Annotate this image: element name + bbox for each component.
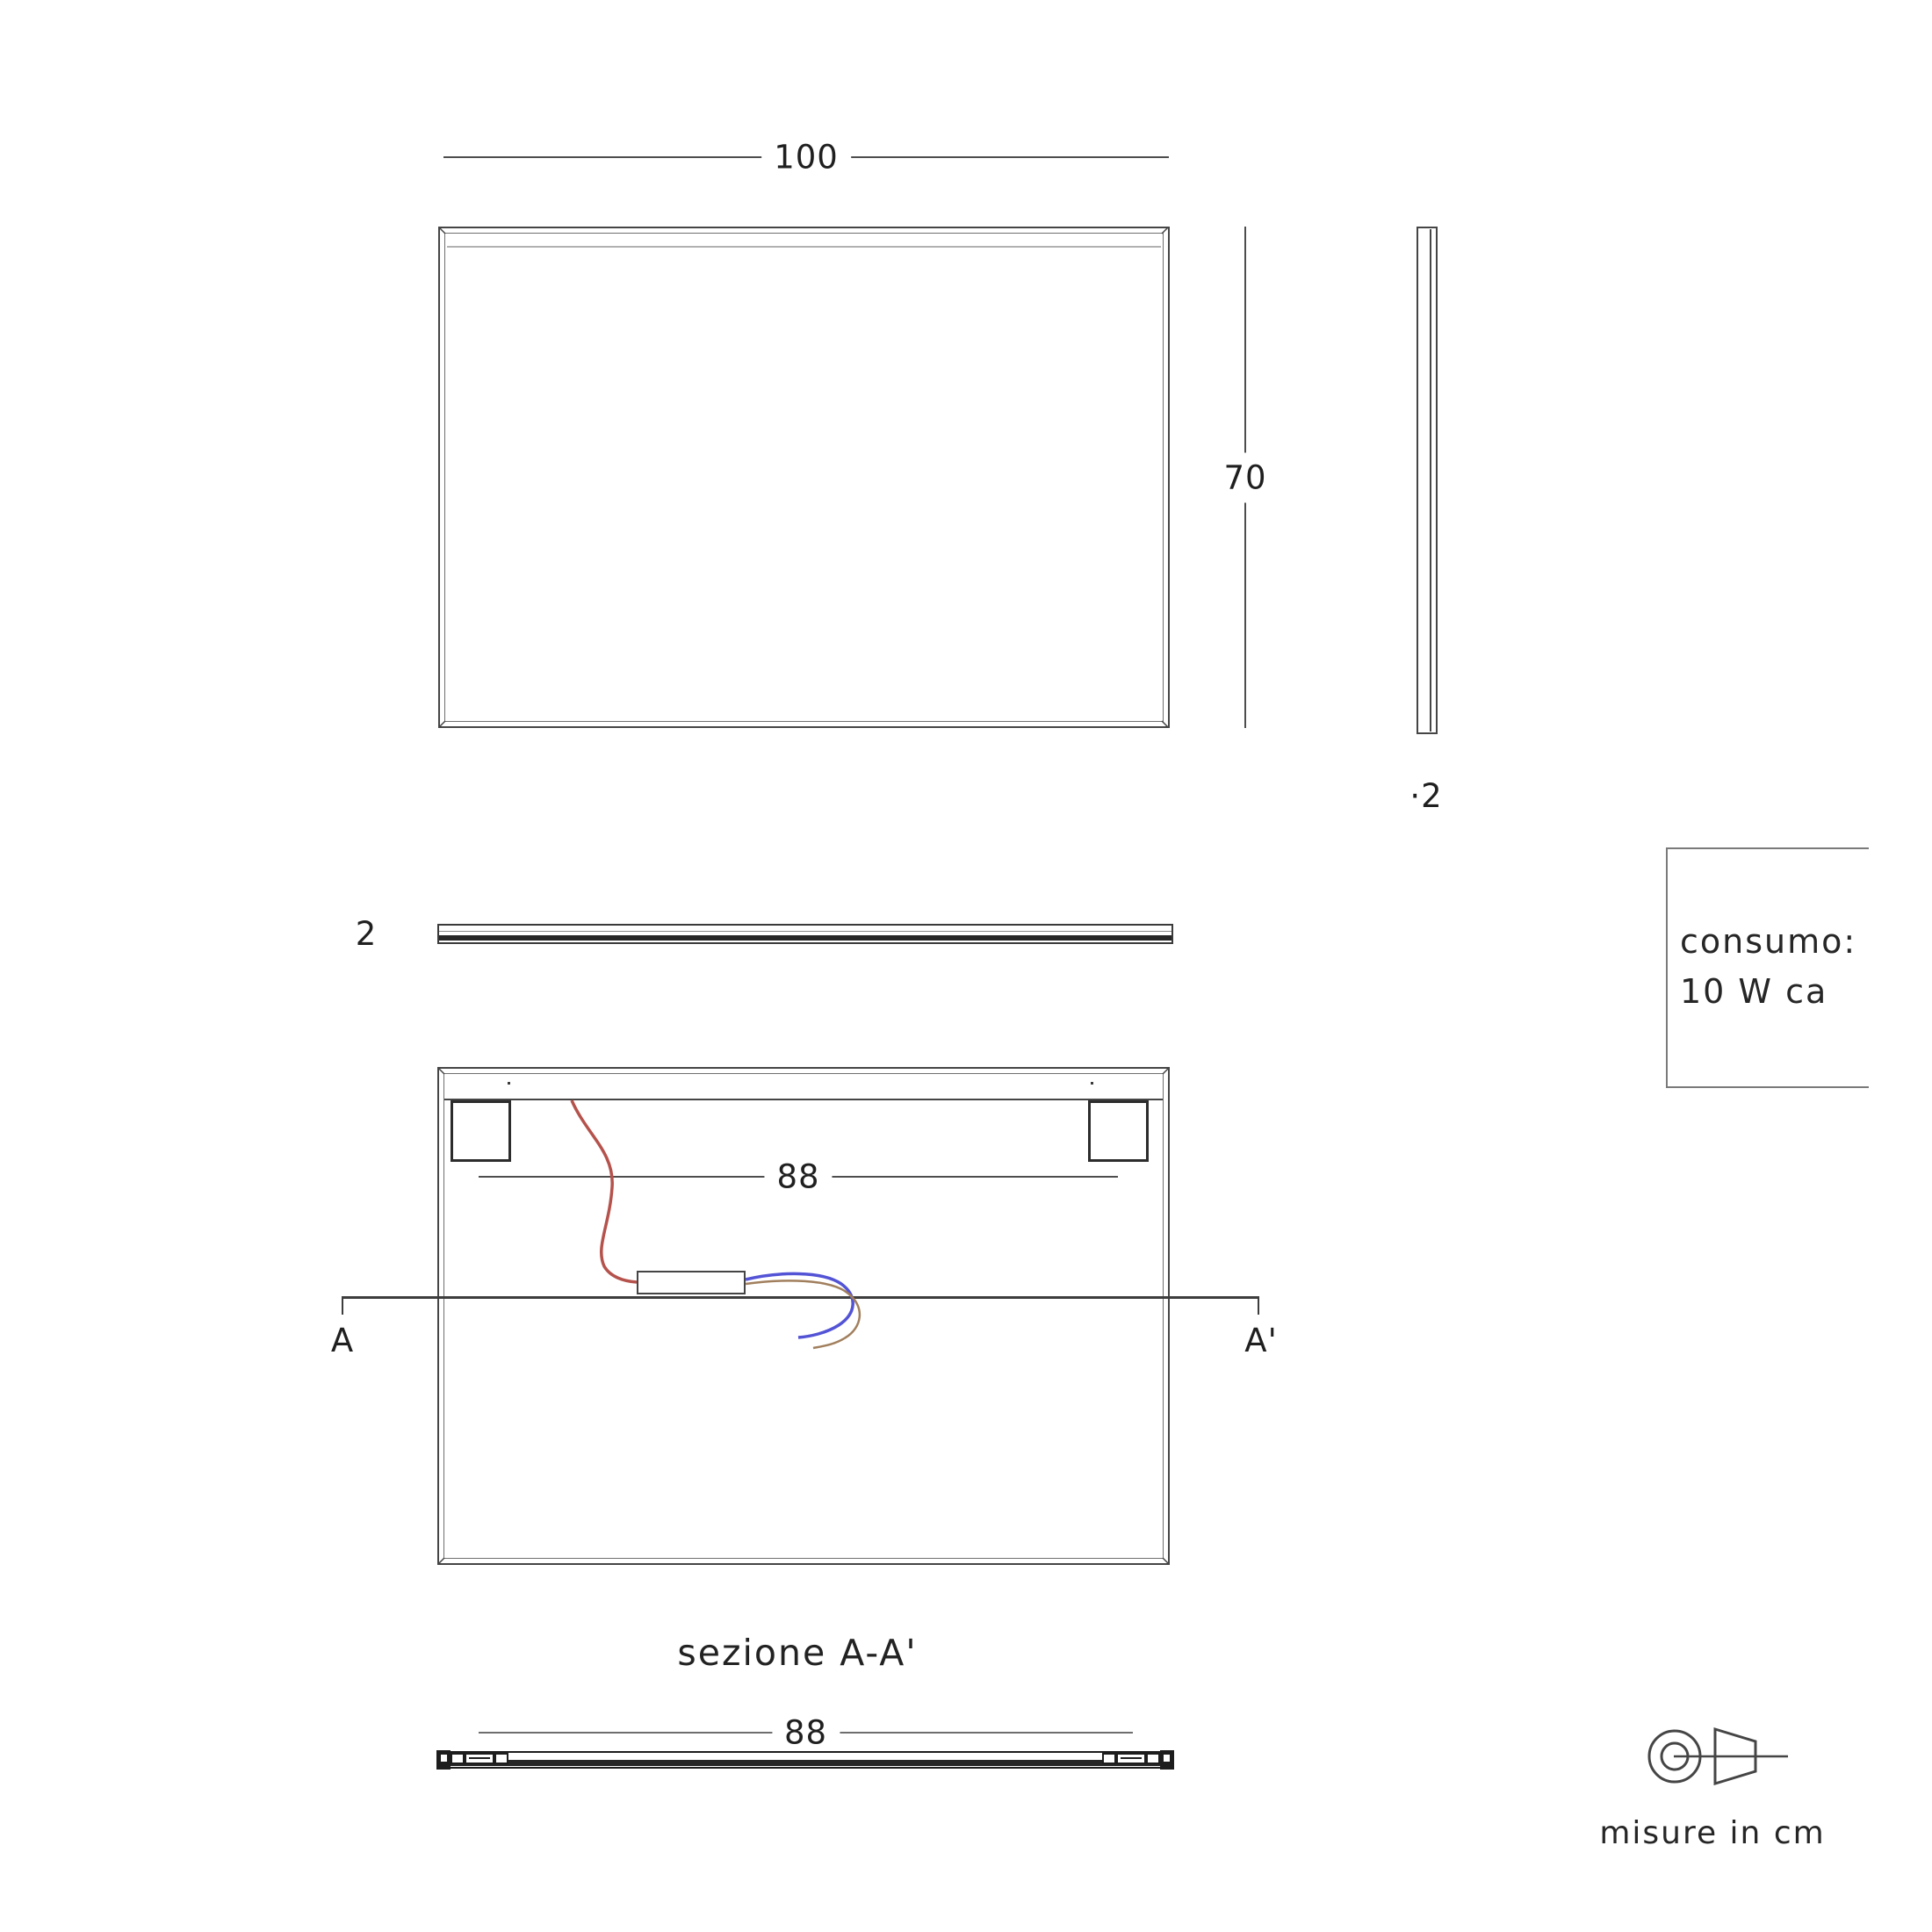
projection-symbol: [1649, 1729, 1788, 1784]
dim-back-width: 88: [479, 1176, 1118, 1178]
section-bar-module-right-line: [1121, 1757, 1142, 1759]
led-driver-box: [637, 1271, 746, 1294]
section-bar-cap-left-inset: [441, 1755, 447, 1762]
consumption-line1: consumo:: [1680, 925, 1856, 958]
top-view-mid-line: [439, 931, 1171, 932]
mounting-bracket-left: [451, 1100, 511, 1162]
section-bar-clip-left-1: [451, 1753, 465, 1764]
section-letter-a: A: [331, 1324, 354, 1357]
side-view-profile: [1417, 227, 1438, 734]
units-note: misure in cm: [1599, 1818, 1825, 1849]
top-thickness-label: 2: [356, 918, 378, 950]
side-thickness-label: ·2: [1409, 780, 1442, 812]
back-view-frame-inner: [443, 1073, 1164, 1559]
mounting-bracket-right: [1088, 1100, 1149, 1162]
top-view-profile: [437, 924, 1173, 944]
technical-drawing-sheet: 100 70 ·2 2 88 A A' sezione A-A' 88: [0, 0, 1932, 1932]
section-caption: sezione A-A': [677, 1635, 917, 1671]
back-view-rail-line: [444, 1099, 1163, 1100]
back-view-screw-left: [508, 1082, 510, 1085]
front-view-frame-inner: [444, 233, 1164, 722]
side-view-inner-line: [1430, 229, 1431, 732]
dim-front-width-label: 100: [761, 141, 851, 174]
section-line-end-left: [342, 1296, 343, 1315]
dim-section-width-label: 88: [772, 1717, 840, 1749]
back-view-screw-right: [1091, 1082, 1093, 1085]
section-line: [342, 1296, 1259, 1299]
dim-front-width: 100: [443, 156, 1169, 158]
front-view-led-strip: [447, 246, 1161, 248]
dim-back-width-label: 88: [764, 1161, 832, 1193]
dim-section-width: 88: [479, 1732, 1133, 1734]
section-bar-clip-left-2: [494, 1753, 508, 1764]
dim-front-height-label: 70: [1222, 452, 1268, 502]
section-letter-a-prime: A': [1244, 1324, 1277, 1357]
top-view-bottom-stripe: [439, 935, 1171, 941]
section-bar-module-left-line: [469, 1757, 490, 1759]
consumption-info-box: [1666, 847, 1869, 1088]
dim-front-height: 70: [1244, 227, 1246, 728]
section-bar-cap-right-inset: [1164, 1755, 1170, 1762]
consumption-line2: 10 W ca: [1680, 975, 1827, 1008]
section-bar-bottom-stripe: [439, 1760, 1171, 1766]
section-line-end-right: [1258, 1296, 1259, 1315]
section-bar-clip-right-1: [1146, 1753, 1160, 1764]
section-bar-clip-right-2: [1102, 1753, 1116, 1764]
